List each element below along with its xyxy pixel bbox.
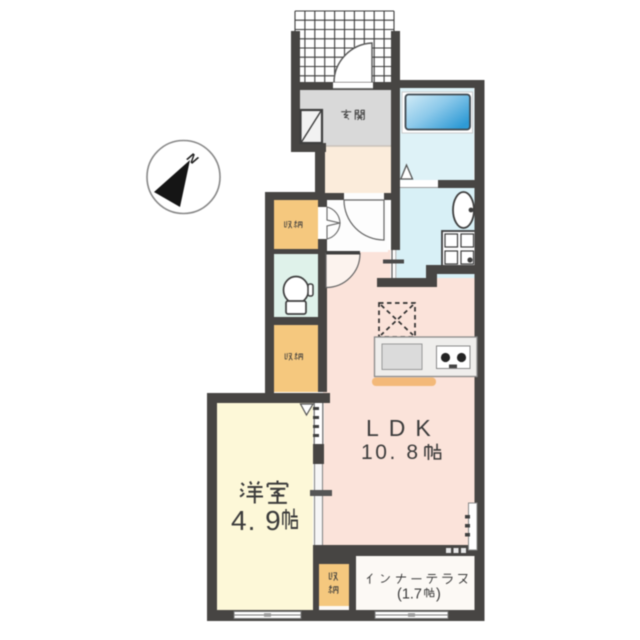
svg-text:4. 9: 4. 9 (231, 505, 282, 536)
svg-text:LDK: LDK (366, 415, 441, 441)
svg-text:): ) (436, 587, 441, 603)
svg-text:(1.7: (1.7 (397, 587, 422, 603)
svg-text:10. 8: 10. 8 (361, 441, 421, 464)
